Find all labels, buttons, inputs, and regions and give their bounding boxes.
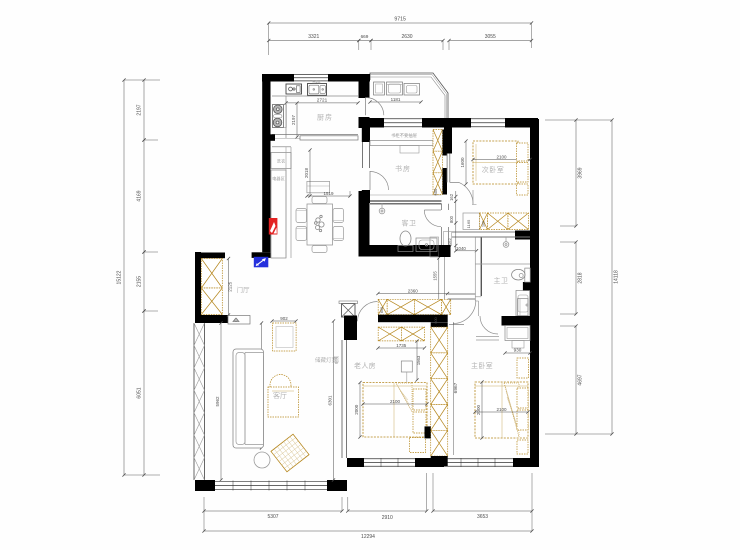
svg-text:2000: 2000 bbox=[476, 404, 481, 415]
svg-text:2197: 2197 bbox=[137, 104, 143, 115]
svg-text:6301: 6301 bbox=[327, 395, 332, 406]
svg-text:6967: 6967 bbox=[453, 382, 459, 393]
svg-text:2818: 2818 bbox=[578, 272, 584, 283]
svg-text:3321: 3321 bbox=[308, 34, 319, 40]
svg-text:600: 600 bbox=[434, 317, 438, 323]
svg-text:主卧室: 主卧室 bbox=[471, 361, 493, 370]
svg-text:4697: 4697 bbox=[578, 374, 584, 385]
svg-text:5962: 5962 bbox=[215, 396, 220, 407]
svg-text:2910: 2910 bbox=[382, 515, 393, 521]
svg-text:600: 600 bbox=[433, 188, 438, 196]
svg-text:2100: 2100 bbox=[390, 399, 401, 404]
svg-text:3969: 3969 bbox=[578, 167, 584, 178]
svg-text:2100: 2100 bbox=[496, 154, 507, 159]
svg-text:2721: 2721 bbox=[317, 97, 328, 102]
svg-text:15122: 15122 bbox=[117, 270, 123, 284]
svg-text:6051: 6051 bbox=[137, 387, 143, 398]
svg-text:1181: 1181 bbox=[391, 97, 401, 102]
svg-text:2197: 2197 bbox=[291, 114, 296, 125]
svg-text:1555: 1555 bbox=[433, 271, 438, 281]
svg-text:洗衣: 洗衣 bbox=[277, 158, 286, 165]
svg-text:2000: 2000 bbox=[354, 404, 359, 415]
svg-text:1519: 1519 bbox=[323, 191, 334, 196]
svg-text:5307: 5307 bbox=[267, 514, 278, 520]
svg-text:930: 930 bbox=[514, 348, 522, 353]
svg-text:600: 600 bbox=[380, 307, 384, 313]
svg-text:12294: 12294 bbox=[361, 534, 375, 540]
svg-text:门厅: 门厅 bbox=[237, 285, 251, 294]
svg-text:2018: 2018 bbox=[304, 167, 309, 178]
svg-text:2360: 2360 bbox=[408, 288, 419, 293]
svg-text:1040: 1040 bbox=[456, 246, 466, 251]
svg-text:1165: 1165 bbox=[466, 219, 471, 228]
svg-text:3653: 3653 bbox=[477, 514, 488, 520]
svg-text:1563: 1563 bbox=[416, 355, 421, 365]
svg-text:洗菜盆: 洗菜盆 bbox=[312, 80, 321, 84]
svg-text:老人房: 老人房 bbox=[354, 361, 376, 370]
svg-text:2630: 2630 bbox=[401, 34, 412, 40]
svg-text:电器区: 电器区 bbox=[272, 175, 285, 182]
svg-text:客卫: 客卫 bbox=[402, 219, 417, 228]
svg-text:书柜不要抽屉: 书柜不要抽屉 bbox=[391, 132, 417, 139]
svg-text:902: 902 bbox=[280, 316, 288, 321]
svg-text:电视: 电视 bbox=[333, 355, 340, 364]
svg-text:14118: 14118 bbox=[614, 270, 620, 284]
svg-text:主卫: 主卫 bbox=[494, 276, 509, 285]
svg-text:2100: 2100 bbox=[496, 407, 507, 412]
svg-text:书房: 书房 bbox=[395, 164, 411, 173]
svg-text:1600: 1600 bbox=[460, 157, 465, 168]
svg-text:3055: 3055 bbox=[485, 34, 496, 40]
svg-text:客厅: 客厅 bbox=[273, 391, 287, 400]
svg-text:100: 100 bbox=[482, 221, 486, 227]
svg-text:2155: 2155 bbox=[137, 276, 143, 287]
svg-text:800: 800 bbox=[449, 215, 454, 223]
svg-text:2125: 2125 bbox=[228, 281, 233, 292]
svg-text:1735: 1735 bbox=[396, 343, 407, 348]
svg-text:4169: 4169 bbox=[137, 190, 143, 201]
svg-text:669: 669 bbox=[361, 34, 369, 39]
svg-text:次卧室: 次卧室 bbox=[482, 165, 505, 174]
svg-text:厨房: 厨房 bbox=[317, 113, 333, 122]
svg-text:9715: 9715 bbox=[394, 17, 406, 23]
svg-text:162: 162 bbox=[449, 193, 454, 201]
